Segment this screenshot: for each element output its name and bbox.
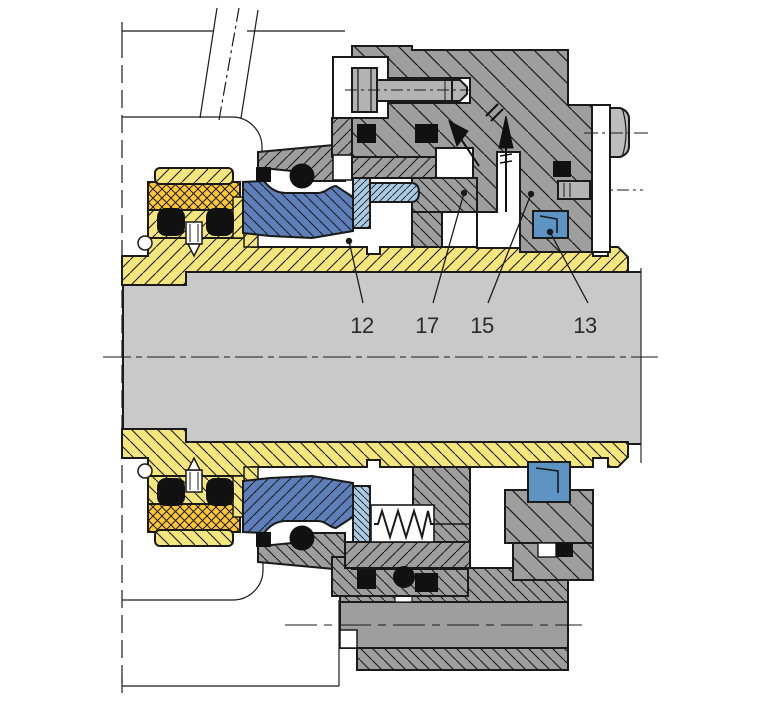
leader-dot (528, 191, 534, 197)
flush-pipe-centerline (219, 8, 239, 120)
face-holder (352, 157, 436, 178)
seal-cross-section-drawing: 12171513 (0, 0, 768, 716)
collar-oring (256, 167, 271, 182)
flush-port-pocket (436, 148, 473, 178)
top-gland (333, 46, 650, 252)
seal-gap-pocket (333, 155, 352, 180)
seal-ring-oring (290, 164, 315, 189)
face-screw (370, 183, 419, 202)
compression-foot (412, 212, 442, 247)
gland-bottom-notch (538, 543, 556, 557)
mechanical-seal-diagram: 12171513 (0, 0, 768, 716)
flush-pipe-wall-left (200, 8, 217, 118)
part-number-text: 17 (415, 313, 439, 338)
shaft-body (123, 272, 641, 444)
flush-pipe-wall-right (241, 10, 258, 118)
part-number-text: 13 (573, 313, 597, 338)
locating-ball (138, 236, 152, 250)
gland-bottom-oring (556, 543, 573, 557)
spring-seat (345, 542, 470, 568)
packing-ring (148, 182, 240, 210)
adapter-oring-left (357, 124, 376, 143)
hub-oring-right (415, 573, 438, 592)
part-number-text: 12 (350, 313, 374, 338)
elastomer-bellows-bottom (528, 462, 570, 502)
compression-unit (412, 178, 477, 212)
bore-outline-top (122, 117, 262, 172)
setting-plate (592, 105, 610, 252)
oring-left (157, 208, 185, 236)
set-screw (558, 181, 590, 199)
leader-dot (461, 190, 467, 196)
seal-face (353, 172, 370, 228)
adapter-oring-right (415, 124, 438, 143)
bore-outline-bottom (122, 552, 263, 600)
follower-lip (155, 168, 233, 184)
outline-bottom-box (122, 600, 339, 686)
leader-dot (346, 238, 352, 244)
hub-notch (340, 630, 357, 648)
rotating-seal-ring (243, 181, 353, 238)
leader-dot (547, 229, 553, 235)
part-number-text: 15 (470, 313, 494, 338)
gland-oring (553, 161, 571, 177)
oring-right (206, 208, 234, 236)
hub-lower-band (357, 648, 568, 670)
hub-oring-left (357, 570, 376, 589)
hub-oring-center (393, 566, 415, 588)
